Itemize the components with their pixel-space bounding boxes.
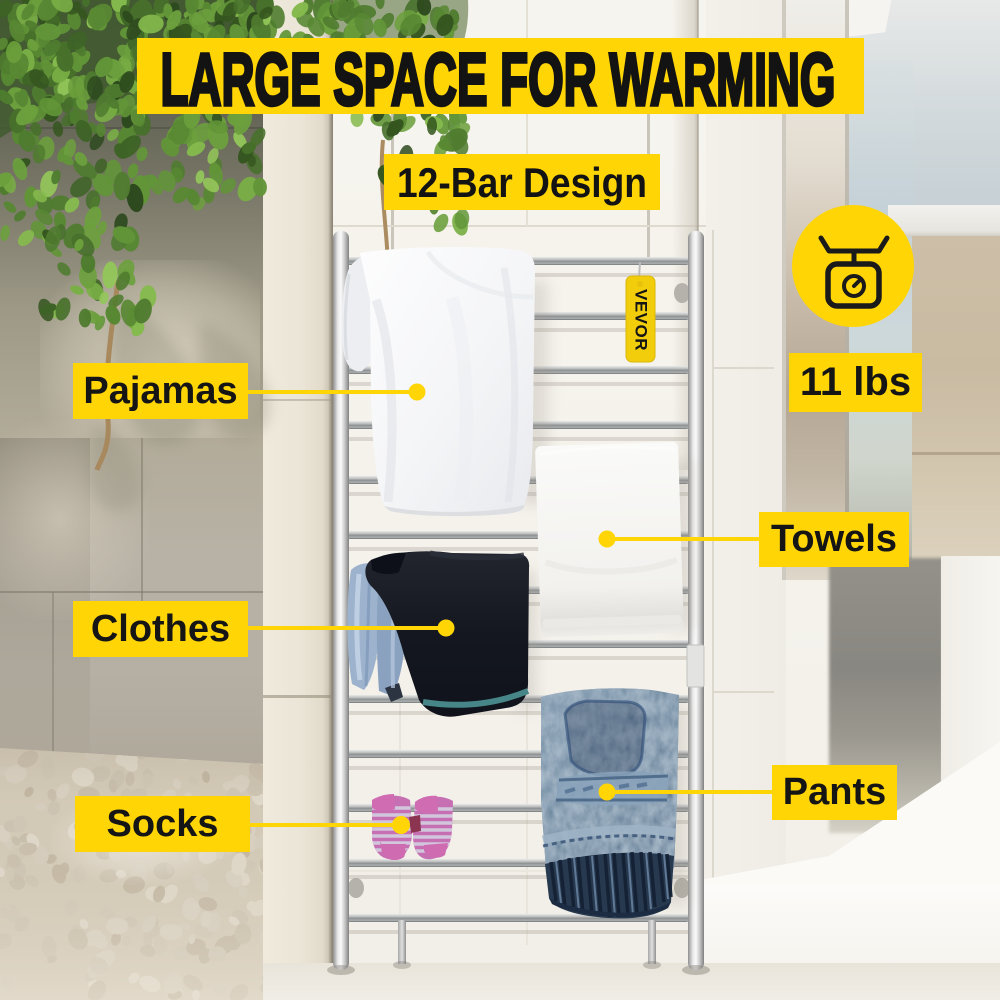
svg-text:LARGE SPACE FOR WARMING: LARGE SPACE FOR WARMING [161,38,836,121]
svg-text:12-Bar Design: 12-Bar Design [397,159,647,206]
svg-text:VEVOR: VEVOR [632,289,651,351]
